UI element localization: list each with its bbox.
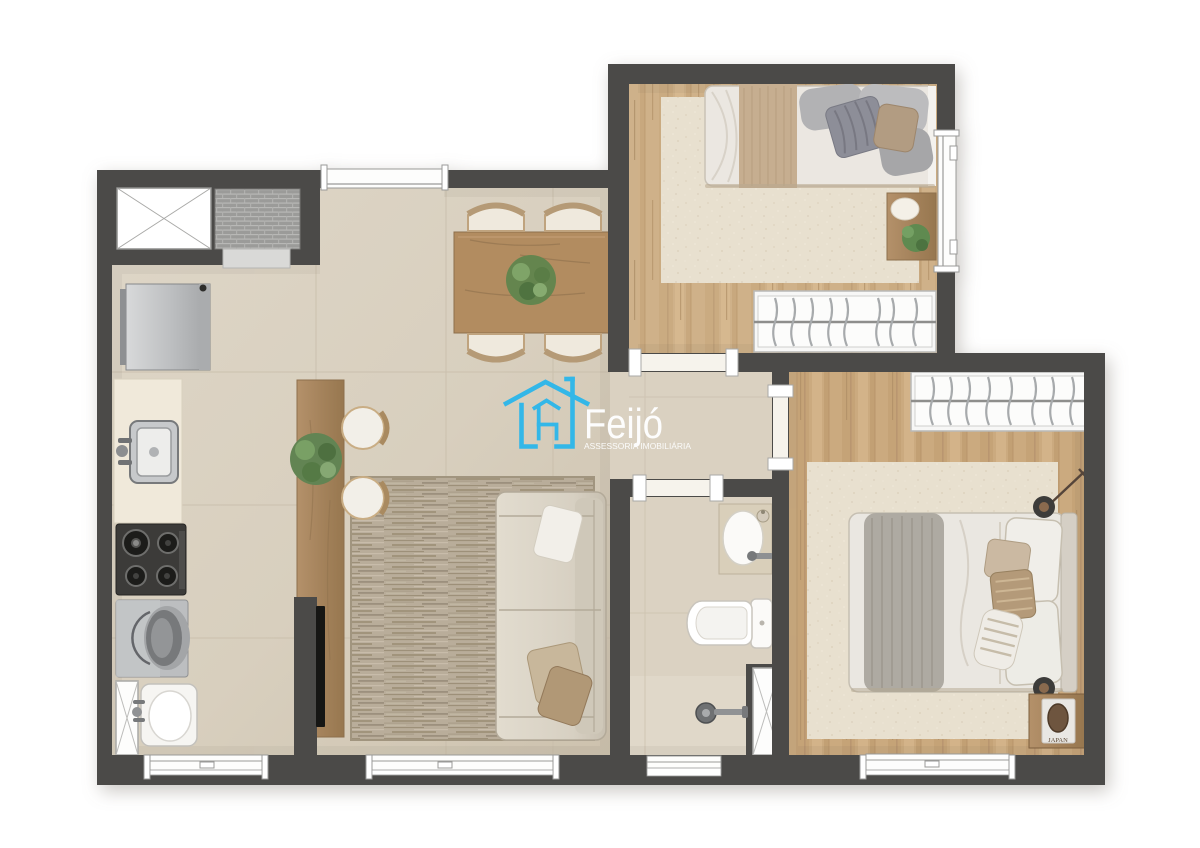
svg-text:ASSESSORIA IMOBILIÁRIA: ASSESSORIA IMOBILIÁRIA — [584, 441, 691, 451]
svg-text:JAPAN: JAPAN — [1048, 737, 1068, 744]
svg-text:Feijó: Feijó — [584, 400, 663, 447]
